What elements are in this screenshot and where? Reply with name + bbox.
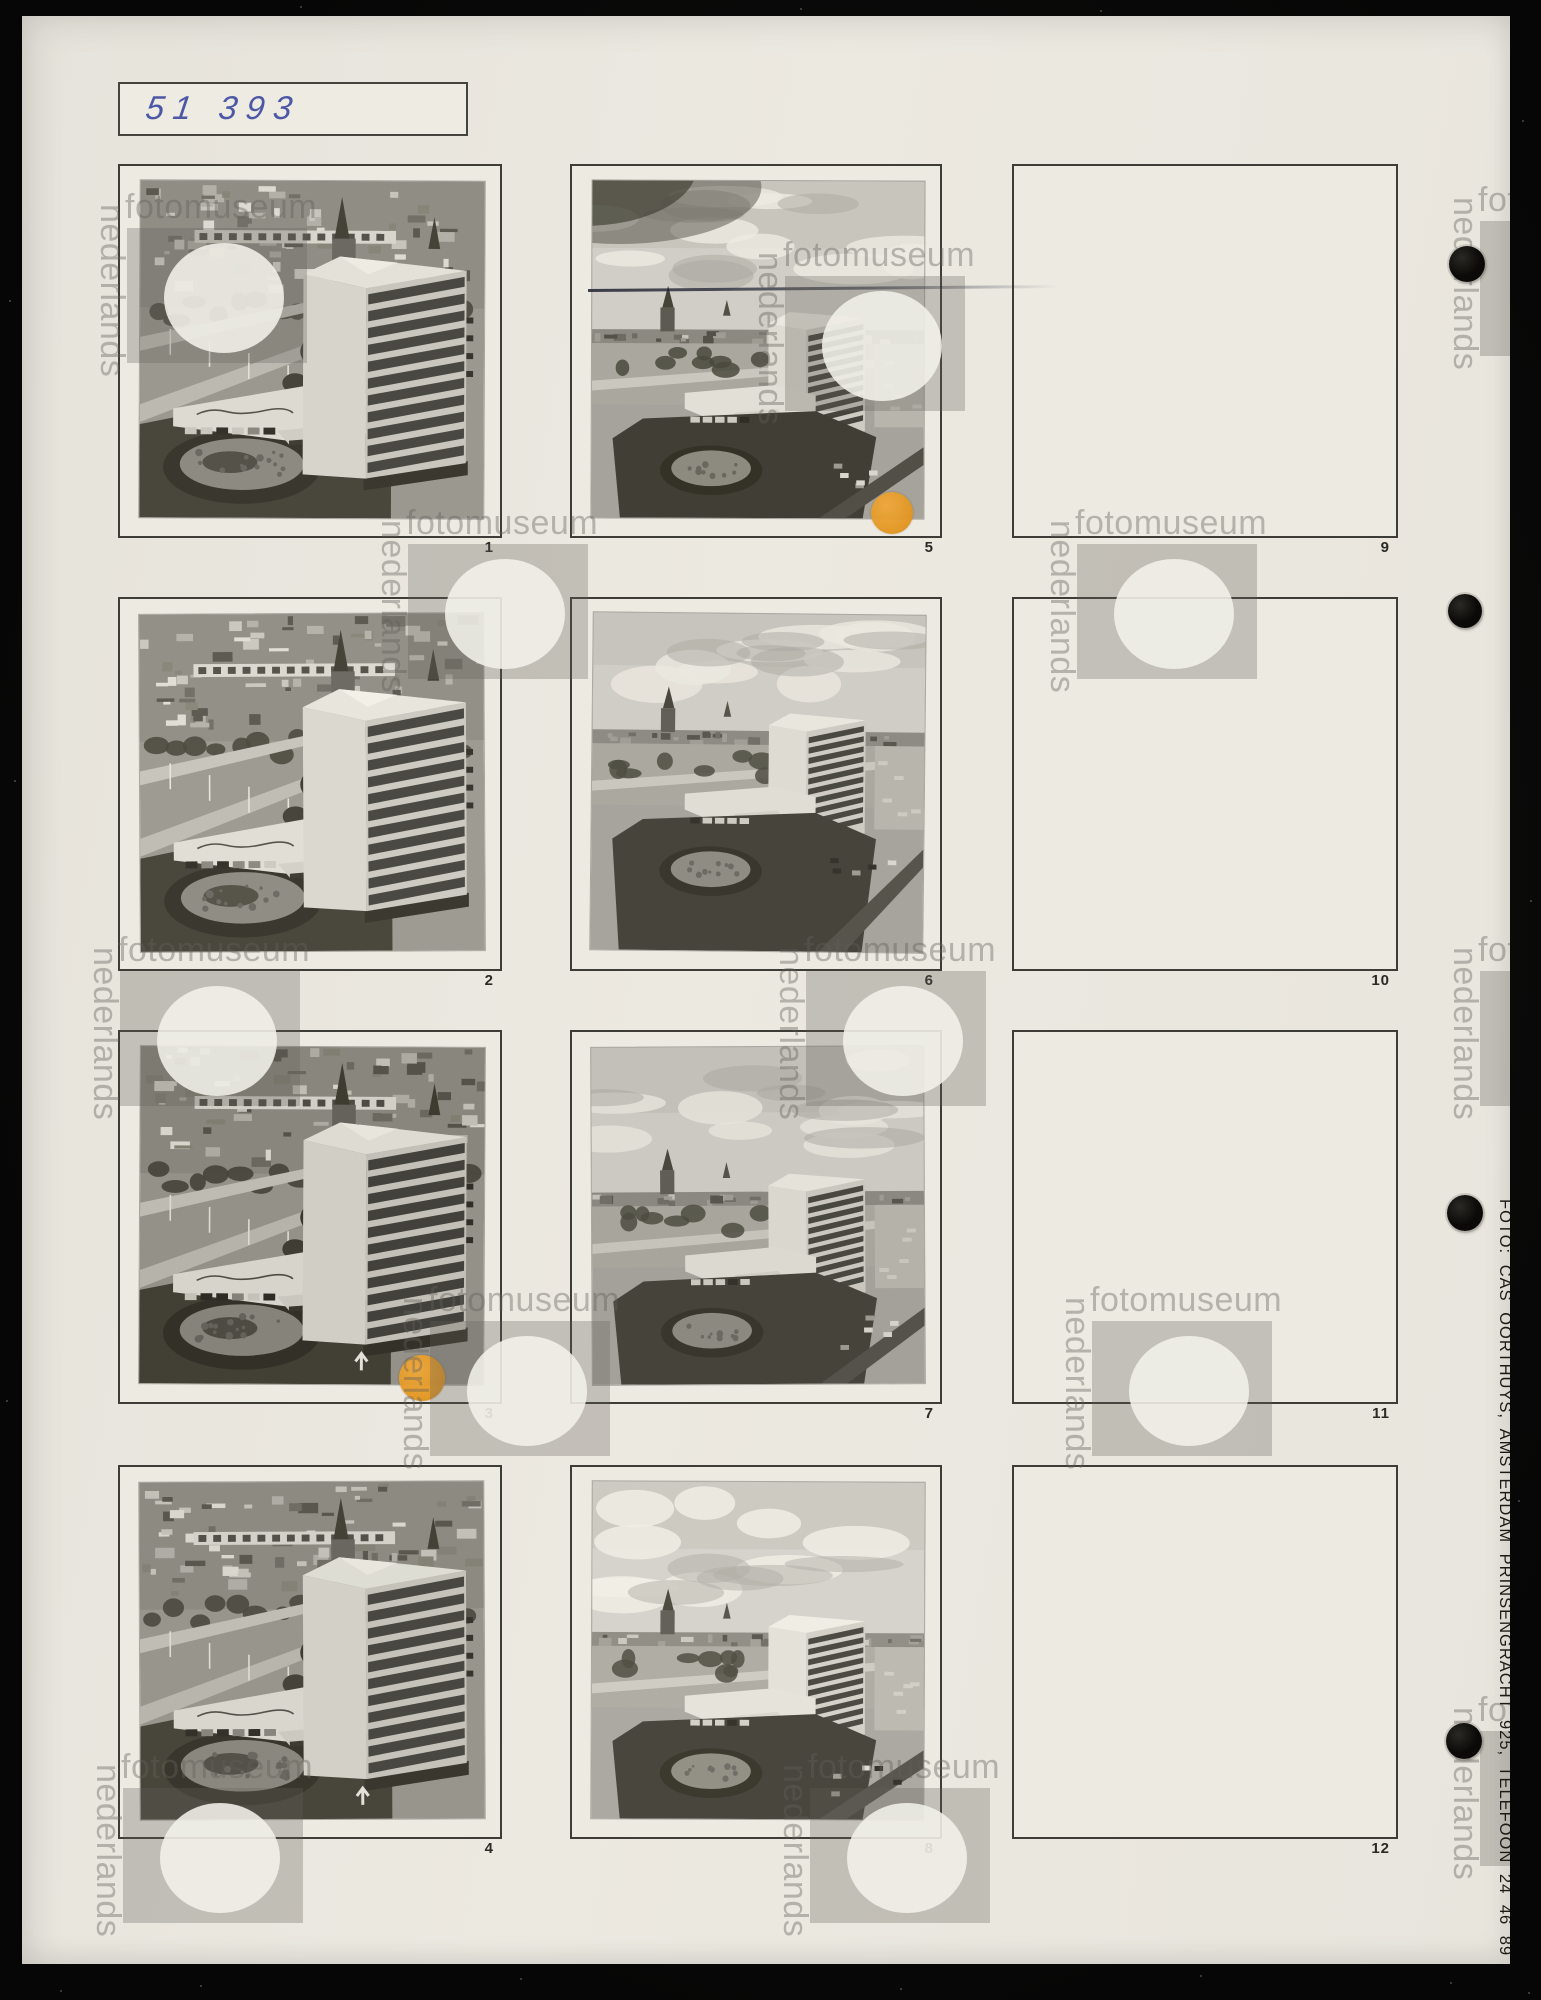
frame-number-label: 8 [925, 1840, 934, 1857]
watermark-fotomuseum-text: fotomuseum [1478, 931, 1510, 970]
contact-frame: 2 [118, 597, 502, 971]
contact-frame: 10 [1012, 597, 1398, 971]
contact-frame: 7 [570, 1030, 942, 1404]
camera-icon [1480, 971, 1510, 1106]
punch-hole [1446, 1723, 1482, 1759]
frame-number-label: 12 [1371, 1840, 1390, 1857]
dust-speck [900, 1988, 902, 1990]
dust-speck [6, 1400, 8, 1402]
contact-frame: 3 [118, 1030, 502, 1404]
camera-icon [1480, 221, 1510, 356]
punch-hole [1449, 246, 1485, 282]
orange-sticker-dot [871, 492, 913, 534]
punch-hole [1448, 594, 1482, 628]
watermark-fotomuseum-text: fotomuseum [1478, 181, 1510, 220]
watermark-nederlands-text: nederlands [1445, 947, 1484, 1120]
frame-number-label: 9 [1381, 539, 1390, 556]
contact-frame: 5 [570, 164, 942, 538]
contact-frame: 6 [570, 597, 942, 971]
contact-frame: 4 [118, 1465, 502, 1839]
contact-frame: 11 [1012, 1030, 1398, 1404]
contact-frame: 8 [570, 1465, 942, 1839]
dust-speck [300, 6, 302, 8]
scan-background: 51 393 123456789101112 nederlandsfotomus… [0, 0, 1541, 2000]
dust-speck [1450, 1982, 1452, 1984]
aerial-photo [139, 613, 485, 952]
dust-speck [9, 300, 11, 302]
watermark-nederlands-text: nederlands [1445, 197, 1484, 370]
frame-number-label: 2 [485, 972, 494, 989]
frame-number-label: 3 [485, 1405, 494, 1422]
contact-frame: 12 [1012, 1465, 1398, 1839]
dust-speck [1200, 1975, 1202, 1977]
dust-speck [800, 8, 802, 10]
photographer-credit: FOTO: CAS OORTHUYS, AMSTERDAM PRINSENGRA… [1495, 1199, 1510, 1956]
frame-number-label: 1 [485, 539, 494, 556]
aerial-photo [591, 1481, 924, 1819]
orange-sticker-dot [399, 1355, 445, 1401]
aerial-photo [139, 1046, 485, 1385]
aerial-photo [591, 180, 924, 518]
dust-speck [1530, 900, 1532, 902]
dust-speck [1100, 10, 1102, 12]
frame-number-label: 7 [925, 1405, 934, 1422]
dust-speck [200, 1985, 202, 1987]
dust-speck [14, 780, 16, 782]
frame-number-label: 6 [925, 972, 934, 989]
aerial-photo [591, 1046, 925, 1385]
archive-number: 51 393 [143, 89, 303, 127]
aerial-photo [139, 180, 484, 518]
dust-speck [520, 1978, 522, 1980]
dust-speck [1518, 1500, 1520, 1502]
punch-hole [1447, 1195, 1483, 1231]
frame-number-label: 5 [925, 539, 934, 556]
archive-number-box: 51 393 [118, 82, 468, 136]
contact-frame: 1 [118, 164, 502, 538]
frame-number-label: 11 [1372, 1405, 1390, 1422]
dust-speck [1528, 1992, 1530, 1994]
aerial-photo [590, 612, 926, 952]
contact-frame: 9 [1012, 164, 1398, 538]
frame-number-label: 10 [1371, 972, 1390, 989]
dust-speck [60, 1990, 62, 1992]
frame-number-label: 4 [485, 1840, 494, 1857]
album-page: 51 393 123456789101112 nederlandsfotomus… [22, 16, 1510, 1964]
aerial-photo [139, 1481, 484, 1819]
dust-speck [1522, 120, 1524, 122]
